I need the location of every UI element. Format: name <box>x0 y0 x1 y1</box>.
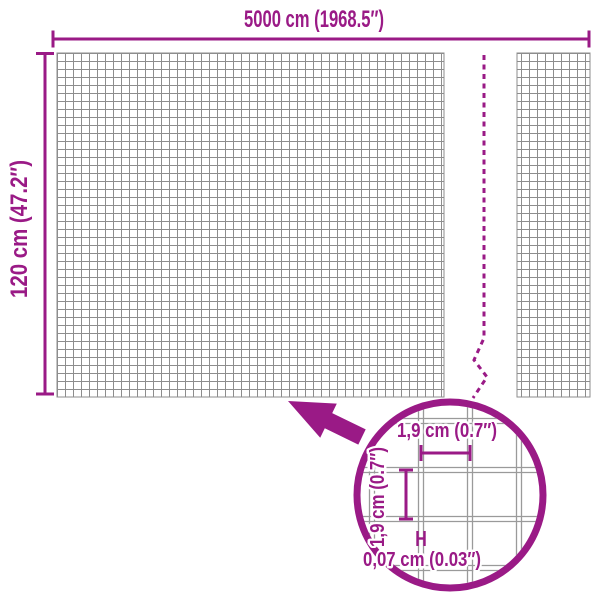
product-dimension-diagram: 5000 cm (1968.5″) 120 cm (47.2″) 1,9 cm … <box>0 0 600 600</box>
detail-dimension-marks <box>399 445 470 546</box>
width-dimension <box>53 31 589 48</box>
diagram-canvas: 5000 cm (1968.5″) 120 cm (47.2″) 1,9 cm … <box>0 0 600 600</box>
mesh-opening-height-label: 1,9 cm (0.7″) <box>367 447 389 547</box>
mesh-panel-right <box>517 53 590 397</box>
mesh-panel-left <box>57 53 444 397</box>
zoom-arrow-icon <box>288 401 366 445</box>
height-dimension-label: 120 cm (47.2″) <box>6 160 33 298</box>
width-dimension-label: 5000 cm (1968.5″) <box>244 6 384 33</box>
mesh-opening-width-label: 1,9 cm (0.7″) <box>397 420 497 442</box>
wire-thickness-label: 0,07 cm (0.03″) <box>363 549 481 571</box>
break-line <box>473 55 487 398</box>
height-dimension <box>36 54 54 395</box>
wire-thickness-marker <box>418 531 425 546</box>
